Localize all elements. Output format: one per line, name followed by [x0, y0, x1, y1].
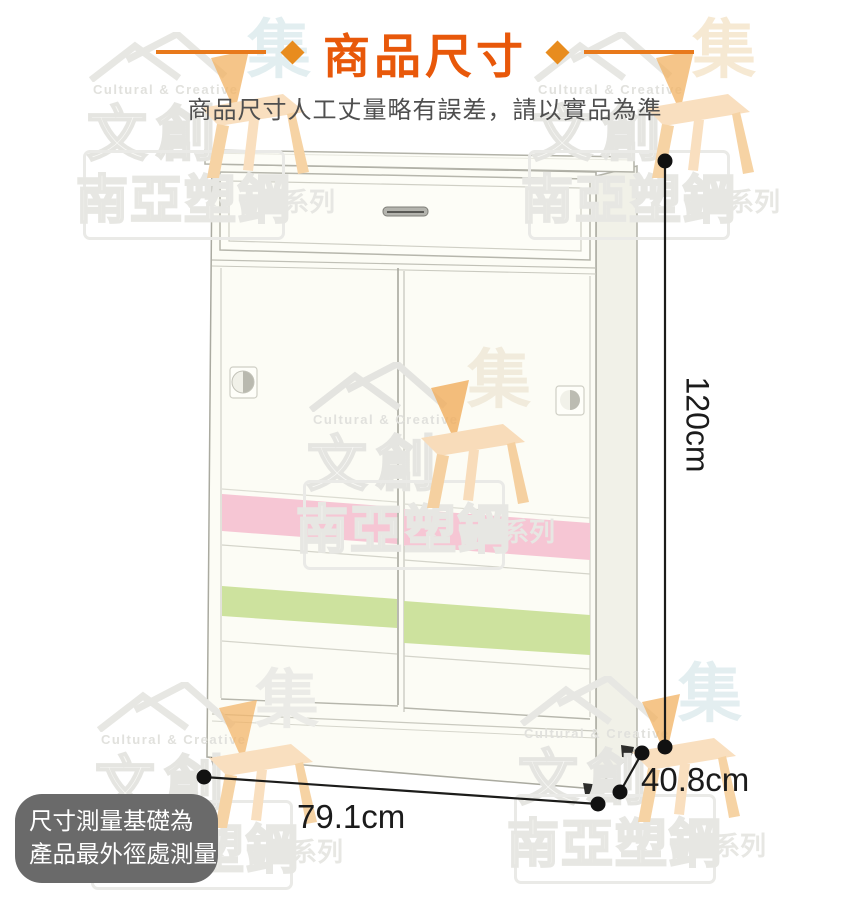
dimension-lines: [0, 0, 850, 894]
left-decorative-line: [156, 50, 266, 54]
right-diamond-icon: [545, 40, 569, 64]
subtitle: 商品尺寸人工丈量略有誤差，請以實品為準: [0, 90, 850, 125]
width-dimension-label: 79.1cm: [297, 798, 405, 836]
depth-dimension-label: 40.8cm: [641, 761, 749, 799]
measurement-note-box: 尺寸測量基礎為 產品最外徑處測量: [15, 794, 218, 883]
left-diamond-icon: [280, 40, 304, 64]
height-dimension-label: 120cm: [679, 373, 716, 477]
right-decorative-line: [584, 50, 694, 54]
note-line-2: 產品最外徑處測量: [29, 838, 218, 871]
note-line-1: 尺寸測量基礎為: [29, 805, 218, 838]
title-row: 商品尺寸: [0, 26, 850, 78]
page-title: 商品尺寸: [323, 18, 527, 87]
height-dimension-line: [658, 154, 673, 755]
product-dimension-page: { "header": { "title": "商品尺寸", "subtitle…: [0, 0, 850, 894]
